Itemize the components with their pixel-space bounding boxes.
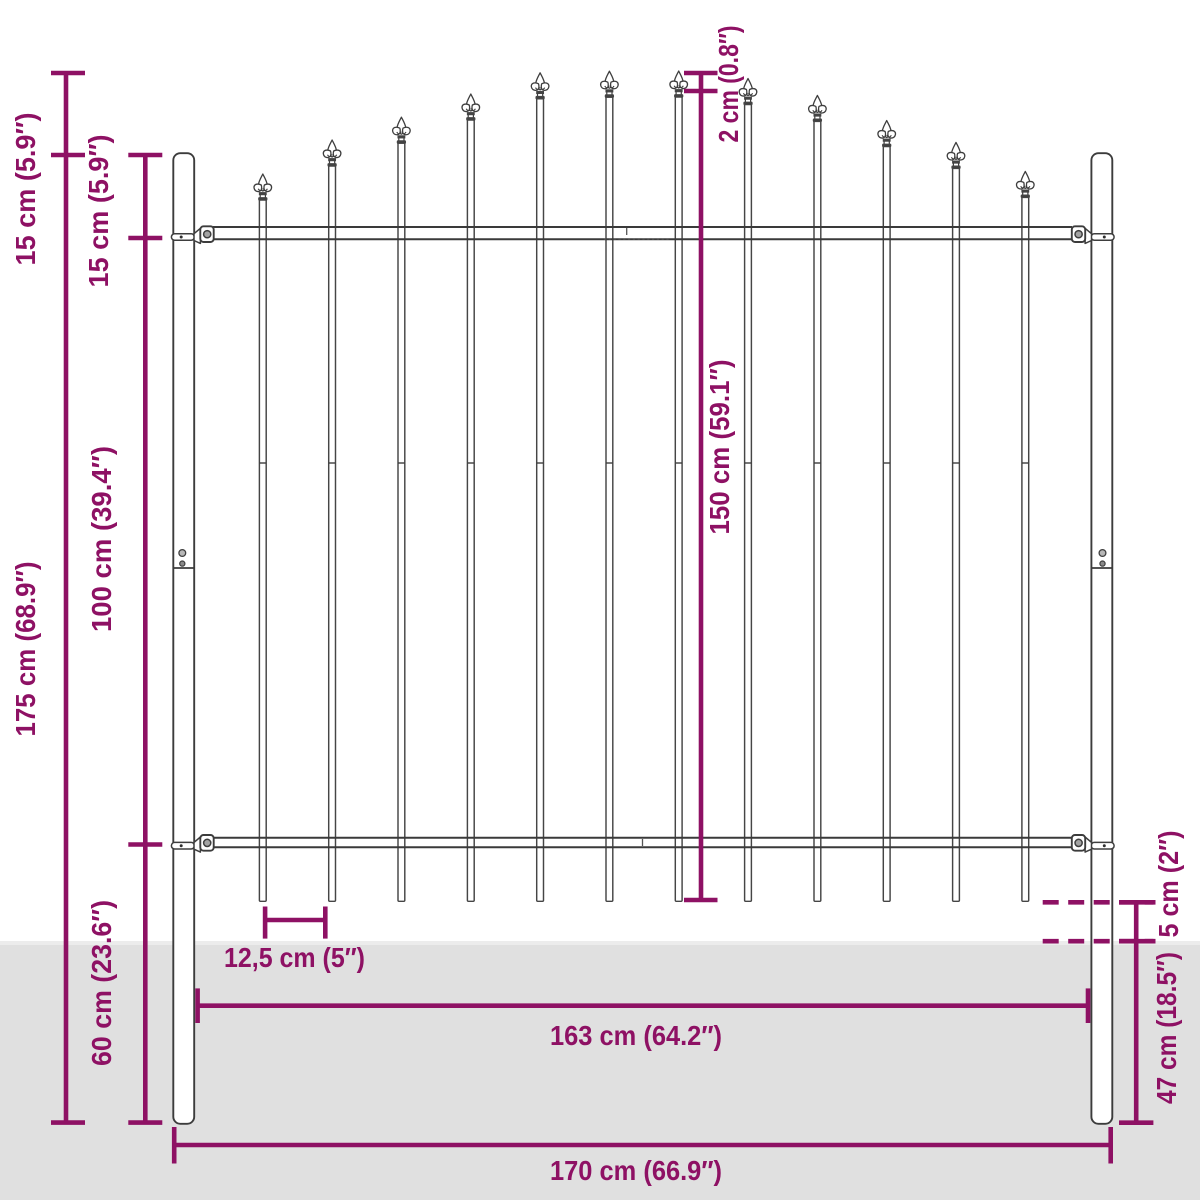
svg-text:2 cm (0.8″): 2 cm (0.8″) (713, 26, 744, 143)
svg-text:47 cm (18.5″): 47 cm (18.5″) (1151, 952, 1182, 1104)
svg-text:150 cm (59.1″): 150 cm (59.1″) (704, 360, 735, 535)
svg-text:175 cm (68.9″): 175 cm (68.9″) (10, 562, 41, 737)
svg-text:60 cm (23.6″): 60 cm (23.6″) (86, 900, 117, 1066)
svg-text:170 cm (66.9″): 170 cm (66.9″) (550, 1155, 722, 1186)
svg-text:5 cm (2″): 5 cm (2″) (1153, 831, 1184, 938)
svg-text:15 cm (5.9″): 15 cm (5.9″) (83, 135, 114, 288)
svg-text:100 cm (39.4″): 100 cm (39.4″) (86, 446, 117, 632)
svg-text:163 cm (64.2″): 163 cm (64.2″) (550, 1020, 722, 1051)
svg-text:12,5 cm (5″): 12,5 cm (5″) (224, 942, 365, 973)
svg-text:15 cm (5.9″): 15 cm (5.9″) (10, 113, 41, 266)
